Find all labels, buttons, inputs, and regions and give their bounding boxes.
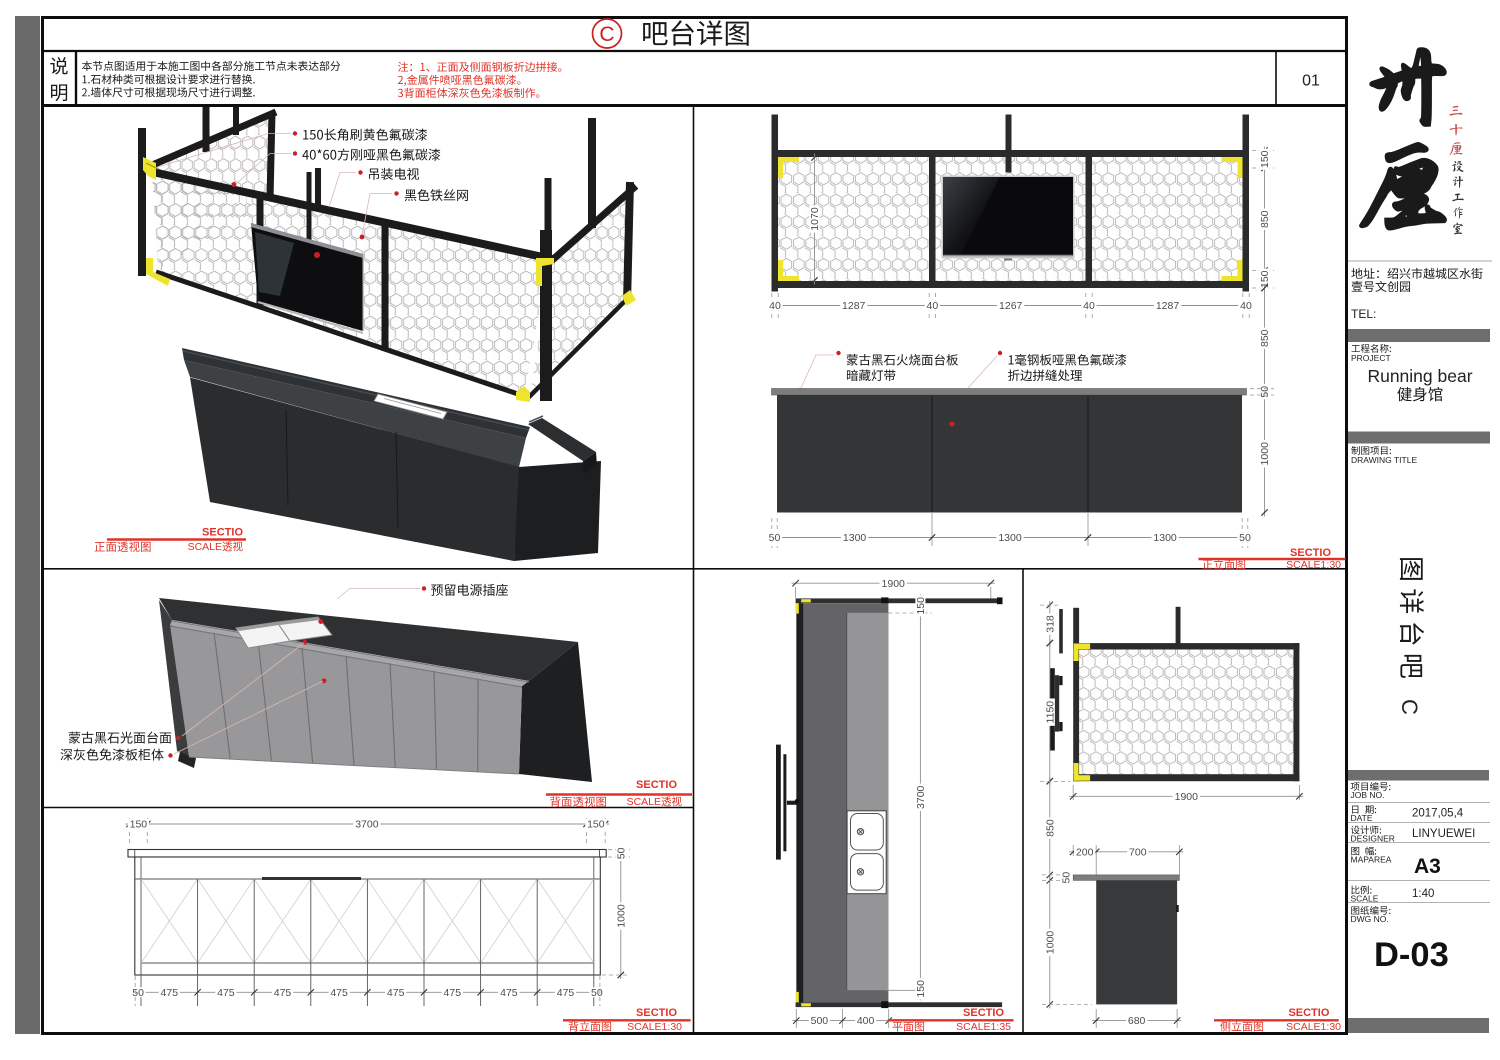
svg-text:50: 50 (1259, 386, 1271, 398)
svg-text:C: C (599, 23, 614, 46)
svg-text:D-03: D-03 (1374, 936, 1449, 974)
svg-text:LINYUEWEI: LINYUEWEI (1412, 828, 1475, 840)
svg-text:1300: 1300 (843, 532, 867, 544)
svg-text:SCALE透视: SCALE透视 (627, 795, 683, 808)
svg-text:SECTIO: SECTIO (963, 1007, 1004, 1019)
svg-text:TEL:: TEL: (1351, 307, 1376, 321)
svg-text:2017,05,4: 2017,05,4 (1412, 808, 1464, 820)
svg-text:1900: 1900 (1175, 791, 1199, 803)
svg-text:475: 475 (500, 987, 518, 999)
svg-text:475: 475 (217, 987, 235, 999)
svg-text:SECTIO: SECTIO (1288, 1007, 1329, 1019)
svg-text:50: 50 (769, 532, 781, 544)
svg-text:700: 700 (1129, 846, 1147, 858)
svg-text:150: 150 (915, 597, 927, 615)
svg-text:318: 318 (1044, 615, 1056, 633)
svg-text:150: 150 (915, 980, 927, 998)
svg-text:PROJECT: PROJECT (1351, 353, 1391, 363)
svg-text:SCALE1:30: SCALE1:30 (1286, 559, 1341, 571)
svg-text:850: 850 (1044, 819, 1056, 837)
svg-text:40: 40 (1240, 300, 1252, 312)
svg-text:40: 40 (769, 300, 781, 312)
svg-text:50: 50 (591, 987, 603, 999)
svg-text:1300: 1300 (1153, 532, 1177, 544)
svg-text:MAPAREA: MAPAREA (1351, 855, 1392, 865)
svg-text:1287: 1287 (842, 300, 866, 312)
svg-text:DATE: DATE (1351, 813, 1373, 823)
svg-text:1000: 1000 (1044, 931, 1056, 955)
svg-text:475: 475 (330, 987, 348, 999)
svg-text:SCALE1:30: SCALE1:30 (1286, 1021, 1341, 1033)
svg-text:150: 150 (130, 819, 148, 831)
svg-text:SECTIO: SECTIO (1290, 547, 1331, 559)
svg-text:850: 850 (1259, 210, 1271, 228)
svg-text:SECTIO: SECTIO (636, 779, 677, 791)
svg-text:DESIGNER: DESIGNER (1351, 834, 1395, 844)
svg-text:1000: 1000 (615, 904, 627, 928)
svg-text:150: 150 (1259, 150, 1271, 168)
svg-text:400: 400 (857, 1015, 875, 1027)
svg-text:Running bear: Running bear (1367, 366, 1472, 386)
svg-text:50: 50 (1061, 872, 1073, 884)
svg-text:SECTIO: SECTIO (636, 1007, 677, 1019)
svg-text:1300: 1300 (998, 532, 1022, 544)
svg-text:DWG NO.: DWG NO. (1351, 914, 1389, 924)
svg-text:200: 200 (1076, 846, 1094, 858)
svg-text:SCALE1:30: SCALE1:30 (627, 1021, 682, 1033)
svg-text:475: 475 (387, 987, 405, 999)
svg-text:JOB NO.: JOB NO. (1351, 790, 1385, 800)
svg-text:475: 475 (557, 987, 575, 999)
svg-text:3700: 3700 (915, 785, 927, 809)
svg-text:475: 475 (274, 987, 292, 999)
svg-text:50: 50 (132, 987, 144, 999)
svg-text:150: 150 (587, 819, 605, 831)
svg-text:SCALE透视: SCALE透视 (188, 540, 244, 553)
svg-text:40: 40 (1083, 300, 1095, 312)
svg-text:50: 50 (615, 847, 627, 859)
svg-text:1070: 1070 (809, 207, 821, 231)
svg-text:1287: 1287 (1156, 300, 1180, 312)
svg-text:1150: 1150 (1044, 701, 1056, 724)
svg-text:3700: 3700 (355, 819, 379, 831)
svg-text:475: 475 (444, 987, 462, 999)
svg-text:1267: 1267 (999, 300, 1023, 312)
svg-text:1:40: 1:40 (1412, 888, 1434, 900)
svg-text:01: 01 (1302, 73, 1320, 90)
svg-text:475: 475 (161, 987, 179, 999)
svg-text:SCALE: SCALE (1351, 894, 1379, 904)
svg-text:DRAWING TITLE: DRAWING TITLE (1351, 455, 1417, 465)
svg-text:150: 150 (1259, 270, 1271, 288)
svg-text:1000: 1000 (1259, 442, 1271, 466)
svg-text:50: 50 (1239, 532, 1251, 544)
svg-text:SCALE1:35: SCALE1:35 (956, 1021, 1011, 1033)
svg-text:SECTIO: SECTIO (202, 527, 243, 539)
svg-text:680: 680 (1128, 1015, 1146, 1027)
svg-text:850: 850 (1259, 329, 1271, 347)
svg-text:1900: 1900 (882, 578, 906, 590)
svg-text:40: 40 (927, 300, 939, 312)
svg-text:A3: A3 (1414, 855, 1441, 878)
svg-text:C: C (1397, 699, 1422, 715)
svg-text:500: 500 (811, 1015, 829, 1027)
